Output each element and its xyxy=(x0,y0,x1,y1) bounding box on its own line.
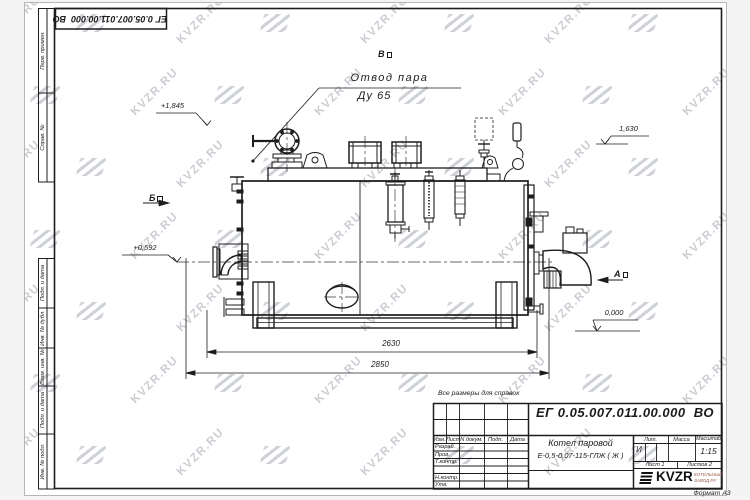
reference-note: Все размеры для справок xyxy=(438,390,512,397)
kvzr-logo-sub2: ЗАВОД.РУ xyxy=(694,479,716,484)
elevation-right-level: 1,630 xyxy=(606,125,651,133)
row-prov: Пров. xyxy=(435,452,450,458)
dimension-frame-length: 2630 xyxy=(356,340,426,349)
product-name: Котел паровой xyxy=(528,439,633,449)
margin-field-perv-primen: Перв. примен. xyxy=(39,8,48,93)
callout-steam-outlet-dn: Ду 65 xyxy=(303,90,446,102)
drawing-sheet: KVZR.RUKVZR.RUKVZR.RUKVZR.RUKVZR.RUKVZR.… xyxy=(0,0,750,500)
boiler-body xyxy=(242,168,528,328)
corner-stamp-doc-number: ЕГ 0.05.007.011.00.000 ВО xyxy=(55,8,167,29)
header-list: Лист xyxy=(446,437,459,443)
view-marker-b-label: Б xyxy=(149,193,155,203)
elevation-axis-level: +0,592 xyxy=(121,244,169,252)
burner-assembly xyxy=(524,185,591,314)
product-designation: Е-0,5-0,07-115-ГЛЖ ( Ж ) xyxy=(528,452,633,460)
scale-value: 1:15 xyxy=(695,447,722,456)
view-marker-v-label: В xyxy=(378,49,385,59)
view-marker-a-label: А xyxy=(614,269,621,279)
header-podp: Подп. xyxy=(484,437,507,443)
row-t-kontr: Т.контр. xyxy=(435,459,458,465)
elevation-ground: 0,000 xyxy=(591,309,637,317)
callout-and-view-arrows xyxy=(143,88,623,283)
elevation-steam-outlet: +1,845 xyxy=(150,102,195,110)
steam-valve xyxy=(253,129,302,168)
header-izm: Изм. xyxy=(433,437,446,443)
dimension-overall-length: 2850 xyxy=(345,361,415,370)
margin-field-inv-dubl: Инв. № дубл. xyxy=(39,308,48,348)
mass-header: Масса xyxy=(668,437,695,443)
format-label: Формат А3 xyxy=(682,490,742,497)
margin-field-sprav-no: Справ. № xyxy=(39,93,48,182)
roof-fittings xyxy=(475,118,524,181)
roof-boxes xyxy=(349,142,421,168)
margin-field-podp-data-1: Подп. и дата xyxy=(39,258,48,308)
sheets-total: Листов 2 xyxy=(677,462,722,468)
row-n-kontr: Н.контр. xyxy=(435,475,459,481)
scale-header: Масштаб xyxy=(695,437,722,443)
callout-steam-outlet: Отвод пара xyxy=(318,72,461,84)
kvzr-logo-text: KVZR xyxy=(656,470,693,485)
view-marker-v: В xyxy=(368,40,392,70)
view-marker-symbol xyxy=(387,52,393,58)
margin-field-podp-data-2: Подп. и дата xyxy=(39,386,48,434)
view-marker-b: Б xyxy=(139,184,163,214)
sheet-number: Лист 1 xyxy=(633,462,677,468)
lit-value: И xyxy=(633,446,645,455)
header-n-dokum: N докум. xyxy=(459,437,484,443)
view-marker-a: А xyxy=(604,260,628,290)
view-marker-symbol xyxy=(623,272,629,278)
row-utv: Утв. xyxy=(435,482,448,488)
lit-header: Лит. xyxy=(633,437,668,443)
margin-field-inv-podl: Инв. № подл. xyxy=(39,434,48,489)
row-razrab: Разраб. xyxy=(435,444,455,450)
margin-field-vzam-inv: Взам. инв. № xyxy=(39,348,48,386)
header-data: Дата xyxy=(507,437,528,443)
title-block-doc-number: ЕГ 0.05.007.011.00.000 ВО xyxy=(530,406,720,420)
view-marker-symbol xyxy=(157,196,163,202)
